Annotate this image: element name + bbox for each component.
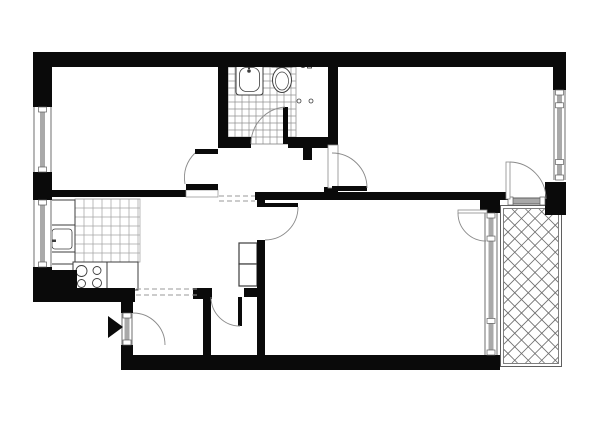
hall-cabinet-lower [239, 264, 257, 286]
door-room1 [184, 149, 218, 190]
bedroom-door-frame [328, 145, 338, 188]
kitchen-counter-2 [107, 262, 138, 290]
hall-cabinet-upper [239, 243, 257, 264]
window-kitchen-left [33, 200, 52, 267]
bedroom-area [338, 67, 553, 192]
wall-hall-stub [303, 148, 312, 160]
wall-entry-upper [121, 288, 133, 313]
door-bedroom-balcony [506, 162, 546, 199]
door-living-room [265, 203, 298, 240]
window-wall-living-balcony [484, 213, 498, 355]
entry-hall-area [133, 297, 203, 355]
balcony-border-inner [504, 209, 559, 364]
wall-room1-bottom [33, 190, 186, 197]
hookup-point-left [297, 99, 301, 103]
glazed-door-bedroom-balcony [508, 197, 545, 205]
room1-door-frame [186, 190, 218, 197]
wall-bathroom-bedroom [328, 67, 338, 148]
wall-bottom [121, 355, 500, 370]
wall-living-west [257, 240, 265, 360]
wall-bathroom-bottom-right [288, 137, 328, 148]
wall-right-upper [553, 52, 566, 90]
bathtub-faucet-icon [247, 69, 251, 73]
wall-left-upper [33, 52, 52, 107]
wall-kitchen-bottom [33, 288, 135, 302]
door-entrance-swing [133, 313, 165, 345]
wall-room1-bathroom [218, 67, 228, 148]
kitchen-counter [48, 252, 75, 264]
kitchen-cabinet [48, 200, 75, 225]
door-bathroom [251, 107, 288, 144]
window-bedroom-right [553, 90, 566, 180]
wall-living-north [255, 192, 508, 200]
door-storage [211, 297, 242, 326]
balcony-area [500, 205, 562, 367]
hookup-point-right [309, 99, 313, 103]
entrance-arrow-icon [108, 316, 123, 338]
floor-plan-canvas [0, 0, 600, 424]
storage-room-area [211, 297, 257, 355]
wall-bathroom-bottom-left [228, 137, 251, 148]
room-top-left-area [52, 67, 218, 190]
wall-top [33, 52, 566, 67]
entrance-door-panel [121, 313, 133, 345]
wall-storage-west [203, 297, 211, 360]
floor-plan-svg [0, 0, 600, 424]
door-living-balcony [458, 210, 487, 241]
living-room-area [265, 200, 485, 355]
wall-right-block [545, 182, 566, 215]
window-room1-left [33, 107, 52, 172]
kitchen-floor-tiles [75, 199, 140, 262]
wall-hall-bottom-right [244, 288, 265, 297]
wall-living-west-stub [257, 200, 265, 207]
balcony-border-outer [501, 206, 562, 367]
balcony-decking-hatch [350, 209, 600, 363]
